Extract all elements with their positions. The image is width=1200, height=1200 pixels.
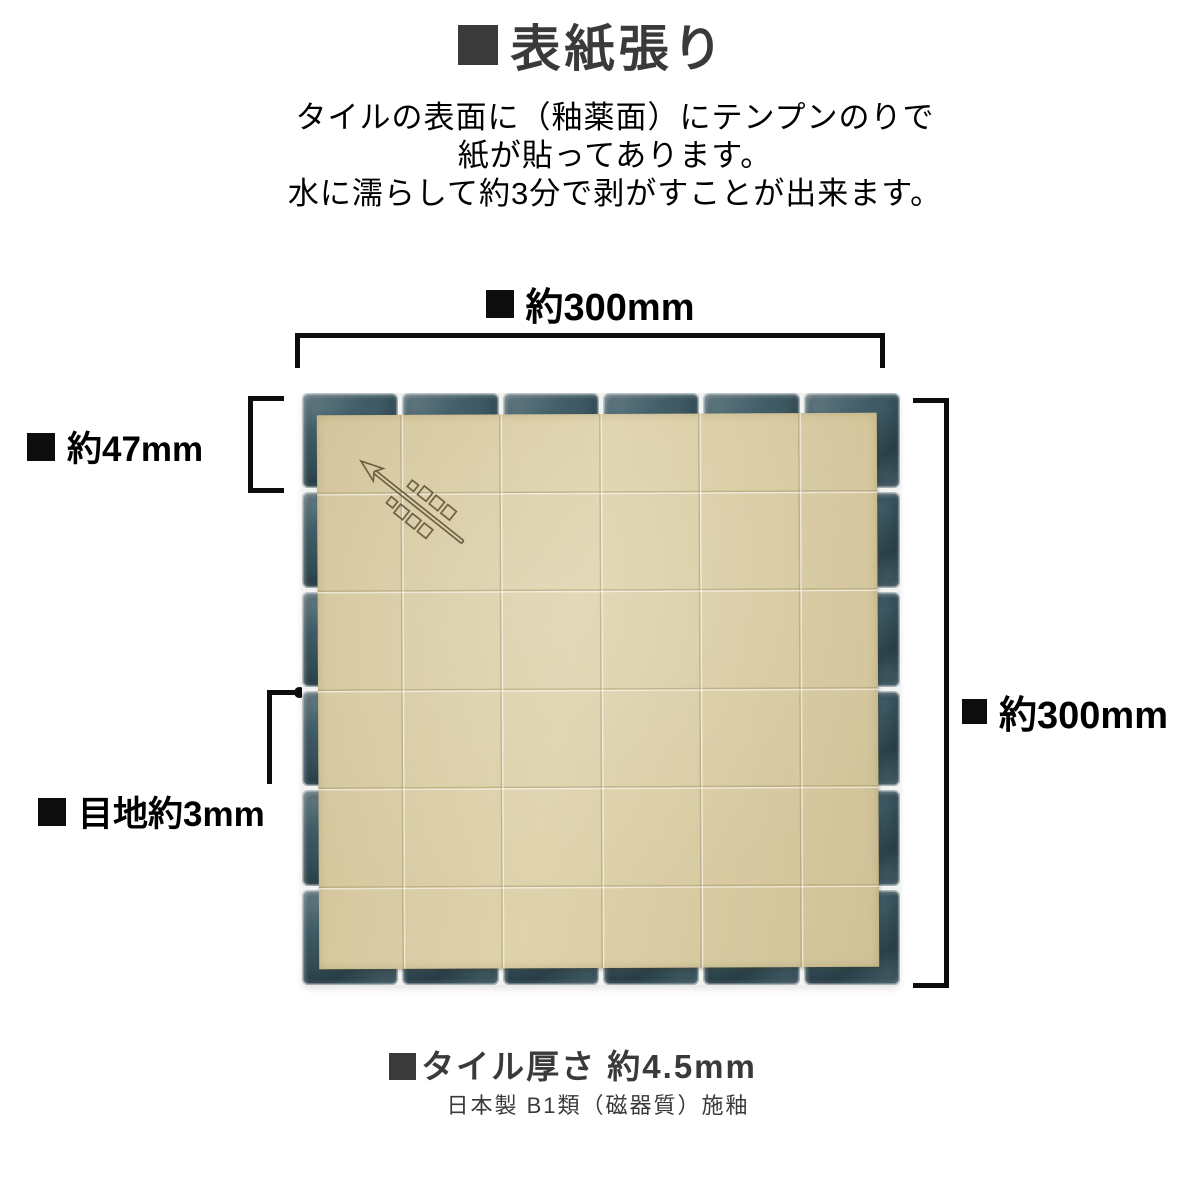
black-square-icon — [486, 290, 514, 318]
dimension-height-text: 約300mm — [999, 684, 1168, 739]
width-dimension-bracket — [295, 333, 885, 368]
footer-spec: 日本製 B1類（磁器質）施釉 — [0, 1088, 1196, 1120]
dimension-label-width: 約300mm — [295, 276, 885, 331]
page-title: 表紙張り — [0, 9, 1184, 81]
dimension-label-joint: 目地約3mm — [38, 786, 265, 837]
black-square-icon — [458, 25, 498, 65]
joint-leader-line — [267, 690, 300, 784]
dimension-width-text: 約300mm — [526, 276, 695, 331]
black-square-icon — [27, 433, 55, 461]
dimension-joint-text: 目地約3mm — [78, 786, 265, 837]
description: タイルの表面に（釉薬面）にテンプンのりで 紙が貼ってあります。 水に濡らして約3… — [30, 99, 1200, 213]
product-diagram: 表紙張り タイルの表面に（釉薬面）にテンプンのりで 紙が貼ってあります。 水に濡… — [0, 0, 1200, 1200]
description-line-3: 水に濡らして約3分で剥がすことが出来ます。 — [30, 175, 1200, 213]
kraft-paper-cover — [317, 413, 879, 969]
black-square-icon — [962, 699, 987, 724]
page-title-text: 表紙張り — [511, 9, 727, 81]
dimension-label-height: 約300mm — [962, 684, 1168, 739]
height-dimension-bracket — [913, 398, 949, 988]
footer-thickness-text: タイル厚さ 約4.5mm — [421, 1048, 757, 1085]
dimension-tile-size-text: 約47mm — [67, 421, 203, 472]
arrow-stamp-icon — [347, 446, 508, 579]
dimension-label-tile-size: 約47mm — [27, 421, 203, 472]
footer-thickness: タイル厚さ 約4.5mm — [0, 1040, 1146, 1088]
description-line-2: 紙が貼ってあります。 — [30, 137, 1200, 175]
tile-size-dimension-bracket — [248, 396, 284, 493]
black-square-icon — [38, 798, 66, 826]
black-square-icon — [389, 1053, 416, 1080]
description-line-1: タイルの表面に（釉薬面）にテンプンのりで — [30, 99, 1200, 137]
tile-sheet — [302, 393, 900, 985]
